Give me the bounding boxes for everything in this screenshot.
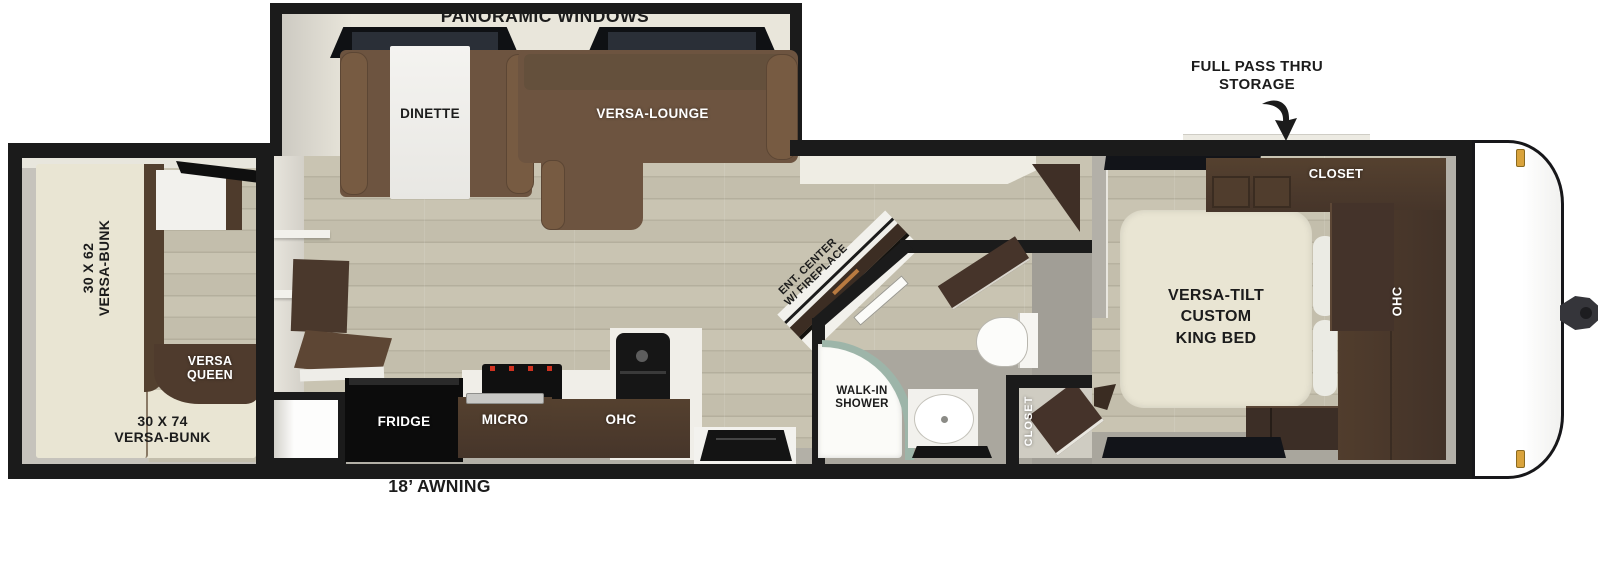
rv-floorplan: 30 X 62 VERSA-BUNK VERSA QUEEN 30 X 74 V… — [0, 0, 1600, 587]
front-wall — [1456, 140, 1472, 479]
bottom-wall — [8, 464, 1472, 479]
fridge-top-edge — [349, 378, 459, 385]
hitch-coupler — [1560, 296, 1598, 330]
bedside-wardrobe — [1330, 203, 1394, 331]
stove-knobs — [490, 366, 556, 371]
top-wall-rear-section — [8, 143, 270, 158]
dinette-arm-left — [340, 52, 368, 195]
versa-lounge-label: VERSA-LOUNGE — [560, 106, 745, 122]
front-cap — [1472, 140, 1564, 479]
fridge-label: FRIDGE — [345, 414, 463, 430]
pass-thru-storage-label: FULL PASS THRU STORAGE — [1152, 57, 1362, 95]
bath-sink-bowl — [914, 394, 974, 444]
kitchen-ohc-label: OHC — [552, 412, 690, 428]
wall-tv-panel — [291, 259, 349, 333]
closet-door-left — [1212, 176, 1250, 208]
lounge-chaise-bolster — [541, 160, 565, 230]
micro-label: MICRO — [458, 412, 552, 428]
bed-pillow-bottom — [1313, 320, 1337, 396]
marker-light-top — [1516, 149, 1525, 167]
marker-light-bottom — [1516, 450, 1525, 468]
closet-door-right — [1253, 176, 1291, 208]
entry-step-well — [700, 430, 792, 461]
awning-label: 18’ AWNING — [347, 476, 532, 498]
side-bunk-label: 30 X 62 VERSA-BUNK — [75, 208, 119, 328]
kitchen-sink — [616, 333, 670, 407]
bath-closet-label: CLOSET — [1022, 386, 1036, 456]
versa-queen-label: VERSA QUEEN — [164, 350, 256, 386]
bedroom-ohc-label: OHC — [1391, 272, 1406, 332]
dinette-label: DINETTE — [390, 106, 470, 122]
toilet-bowl — [976, 317, 1028, 367]
lounge-back-cushion — [524, 54, 792, 90]
bath-closet-left-wall — [1006, 375, 1019, 464]
panoramic-windows-label: PANORAMIC WINDOWS — [390, 6, 700, 28]
bunk-divider-wall — [256, 143, 274, 464]
rear-wall — [8, 143, 22, 479]
walk-in-shower-label: WALK-IN SHOWER — [814, 383, 910, 413]
top-wall-front-section — [790, 140, 1472, 156]
micro-tray — [466, 393, 544, 404]
sink-divider — [620, 371, 666, 374]
sink-faucet — [636, 350, 648, 362]
pass-thru-arrow-icon — [1256, 94, 1300, 142]
kitchen-ohc-cabinet — [552, 399, 690, 458]
window-glass — [608, 32, 756, 52]
sink-drain — [941, 416, 948, 423]
bath-sink-mat — [912, 446, 992, 458]
dinette-table — [390, 46, 470, 199]
hitch-socket — [1580, 307, 1592, 319]
bedroom-window-bottom — [1102, 437, 1286, 458]
king-bed-label: VERSA-TILT CUSTOM KING BED — [1120, 282, 1312, 352]
bedroom-west-wall — [1092, 156, 1108, 318]
bedroom-closet-label: CLOSET — [1290, 166, 1382, 182]
rear-bunk-label: 30 X 74 VERSA-BUNK — [95, 412, 230, 448]
wall-ledge-upper — [274, 230, 330, 238]
rear-step-box — [264, 392, 346, 466]
step-shading — [272, 400, 294, 458]
step-inner-line — [716, 438, 776, 440]
hall-counter — [800, 156, 1036, 184]
